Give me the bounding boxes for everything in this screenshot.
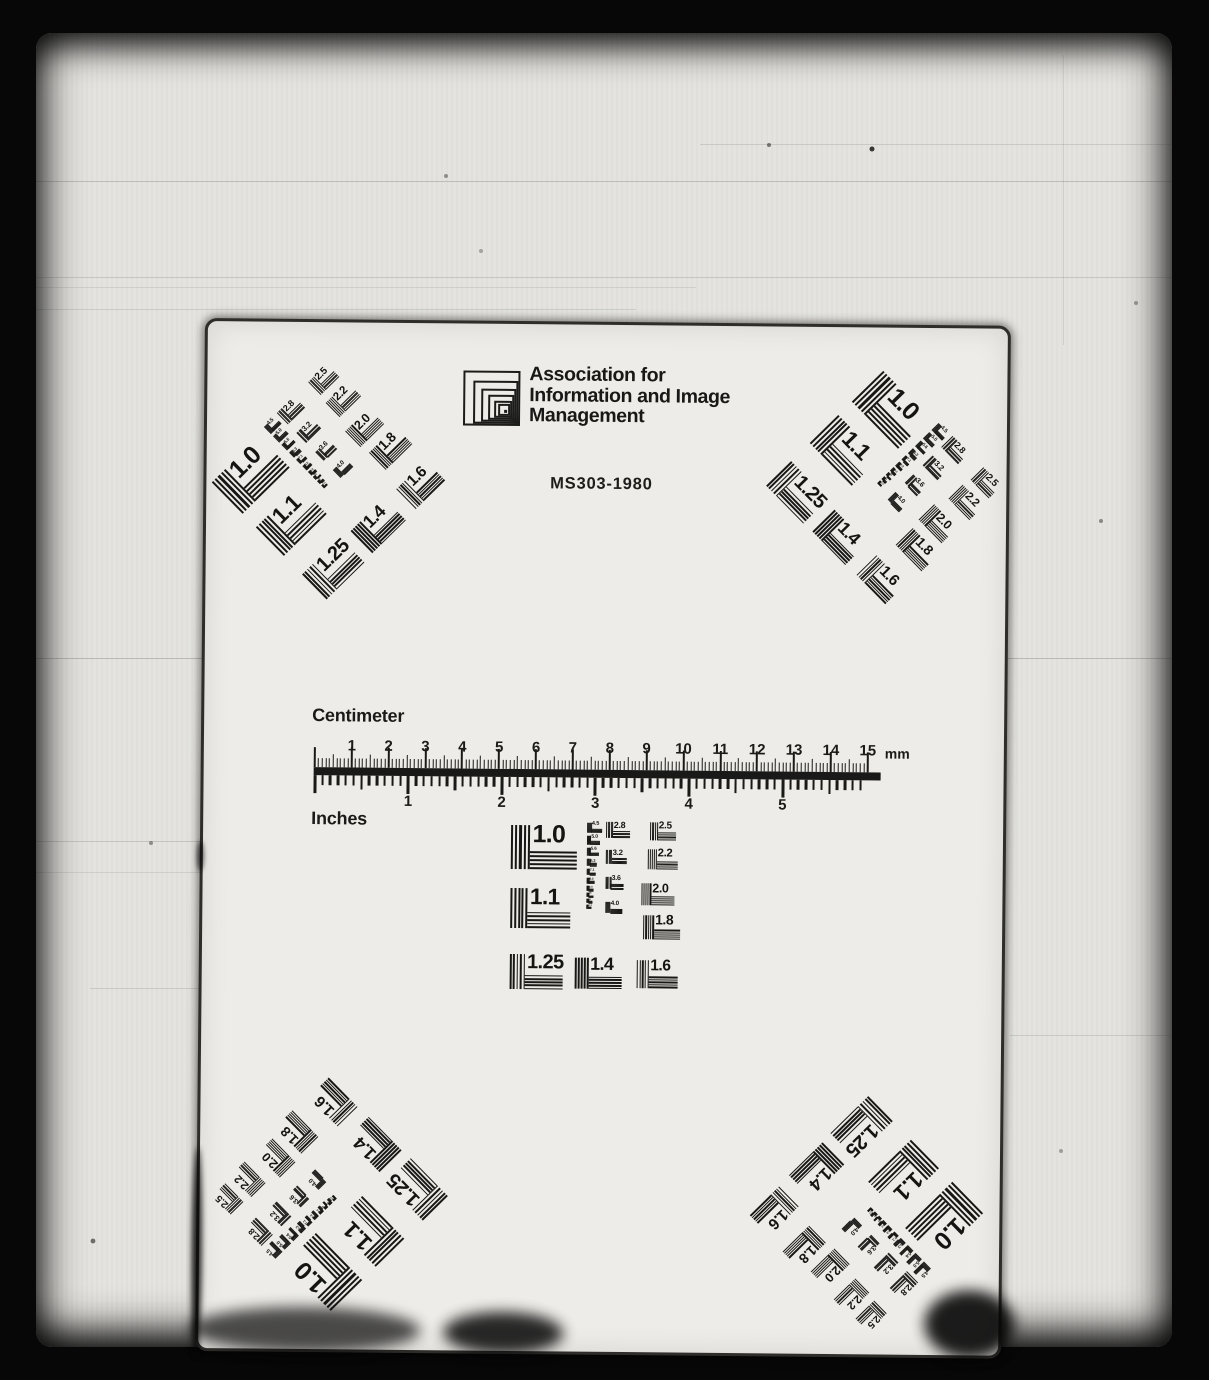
cm-tick	[863, 763, 864, 772]
cm-tick	[380, 759, 381, 768]
test-pattern-4.0: 4.0	[843, 1218, 862, 1237]
cm-tick	[447, 759, 448, 768]
cm-tick	[480, 756, 481, 769]
cm-tick	[561, 760, 562, 769]
test-pattern-1.25: 1.25	[510, 954, 563, 990]
horizontal-bars	[613, 831, 630, 838]
pattern-value-label: 1.6	[650, 958, 670, 974]
pattern-value-label: 10	[889, 473, 893, 477]
inch-tick	[602, 778, 604, 788]
inch-tick	[586, 778, 588, 788]
cm-tick	[602, 761, 603, 770]
inch-tick	[423, 776, 425, 786]
inch-tick	[836, 780, 838, 790]
vertical-bars	[575, 958, 589, 990]
cm-tick	[517, 756, 518, 769]
horizontal-bars	[656, 861, 677, 869]
cm-tick	[322, 758, 323, 767]
cm-tick	[336, 758, 337, 767]
test-pattern-1.0: 1.0	[511, 825, 577, 870]
inch-tick	[672, 779, 674, 789]
test-pattern-4.0: 4.0	[605, 902, 622, 913]
inch-tick	[625, 778, 627, 788]
cm-tick	[510, 760, 511, 769]
pattern-value-label: 2.5	[659, 821, 672, 831]
horizontal-bars	[530, 851, 577, 869]
inch-tick	[610, 778, 612, 788]
cm-tick	[314, 747, 316, 767]
scratch-line	[36, 181, 1172, 182]
test-pattern-4.0: 4.0	[888, 492, 907, 511]
inch-tick	[384, 776, 386, 786]
inch-tick	[454, 776, 457, 790]
cm-number: 5	[488, 739, 510, 756]
cm-tick	[355, 758, 356, 767]
pattern-value-label: 9.0	[589, 885, 593, 888]
pattern-value-label: 1.4	[590, 956, 613, 974]
inch-tick	[563, 777, 565, 787]
cm-tick	[521, 760, 522, 769]
horizontal-bars	[589, 881, 595, 883]
cm-tick	[568, 761, 569, 770]
cm-tick	[753, 762, 754, 771]
cm-tick	[860, 763, 861, 772]
inch-tick	[547, 777, 550, 791]
inch-tick	[774, 779, 776, 789]
pattern-value-label: 6.3	[897, 1243, 903, 1249]
vertical-bars	[648, 849, 657, 869]
cm-tick	[716, 762, 717, 771]
cm-number: 2	[378, 738, 400, 755]
test-pattern-2.2: 2.2	[834, 1278, 869, 1313]
horizontal-bars	[591, 828, 601, 832]
pattern-value-label: 2.2	[658, 848, 673, 860]
inch-number: 1	[397, 793, 419, 810]
test-pattern-2.8: 2.8	[606, 822, 630, 838]
cm-tick	[325, 758, 326, 767]
inch-tick	[368, 776, 370, 786]
pattern-value-label: 11	[884, 477, 887, 480]
cm-tick	[812, 759, 813, 772]
cm-tick	[679, 762, 680, 771]
cm-tick	[705, 762, 706, 771]
inch-number: 3	[584, 795, 606, 812]
cm-number: 6	[525, 739, 547, 756]
cm-tick	[506, 760, 507, 769]
inch-tick	[313, 775, 316, 793]
cm-tick	[709, 762, 710, 771]
pattern-value-label: 1.8	[655, 914, 673, 928]
horizontal-bars	[651, 896, 675, 905]
pattern-value-label: 10	[589, 892, 592, 895]
cm-tick	[554, 756, 555, 769]
horizontal-bars	[525, 975, 563, 990]
test-pattern-6.3: 6.3	[587, 859, 598, 866]
cm-tick	[841, 763, 842, 772]
test-pattern-12.5: 12.5	[321, 482, 327, 488]
horizontal-bars	[658, 833, 677, 840]
inches-label: Inches	[311, 808, 367, 830]
cm-tick	[487, 760, 488, 769]
cm-tick	[782, 763, 783, 772]
cm-tick	[801, 763, 802, 772]
pattern-value-label: 7.1	[590, 868, 595, 872]
test-pattern-3.2: 3.2	[923, 455, 947, 479]
cm-tick	[786, 763, 787, 772]
test-pattern-1.1: 1.1	[334, 1196, 405, 1267]
cm-tick	[373, 759, 374, 768]
inch-tick	[781, 780, 784, 798]
cm-tick	[620, 761, 621, 770]
cm-tick	[587, 761, 588, 770]
inch-tick	[345, 775, 347, 785]
cm-tick	[583, 761, 584, 770]
pattern-value-label: 9.0	[894, 469, 899, 474]
inch-tick	[438, 776, 440, 786]
pattern-value-label: 11	[588, 898, 590, 900]
cm-number: 7	[562, 739, 584, 756]
vertical-bars	[637, 960, 649, 988]
cm-tick	[627, 757, 628, 770]
cm-tick	[502, 760, 503, 769]
horizontal-bars	[588, 907, 592, 908]
cm-tick	[454, 759, 455, 768]
test-pattern-4.0: 4.0	[307, 1170, 326, 1189]
cm-tick	[624, 761, 625, 770]
inch-tick	[329, 775, 331, 785]
cm-tick	[771, 762, 772, 771]
inch-tick	[516, 777, 518, 787]
cm-tick	[694, 762, 695, 771]
test-pattern-3.2: 3.2	[606, 850, 627, 864]
test-pattern-2.0: 2.0	[641, 883, 674, 905]
cm-tick	[495, 760, 496, 769]
test-pattern-2.2: 2.2	[948, 485, 983, 520]
cm-tick	[377, 759, 378, 768]
cm-number: 4	[451, 738, 473, 755]
cm-tick	[764, 762, 765, 771]
cm-tick	[760, 762, 761, 771]
vertical-bars	[511, 825, 530, 869]
inch-tick	[727, 779, 729, 789]
cm-tick	[779, 763, 780, 772]
inch-tick	[641, 778, 644, 792]
vertical-bars	[510, 954, 526, 989]
inch-tick	[844, 780, 846, 790]
cm-tick	[428, 759, 429, 768]
inch-tick	[657, 778, 659, 788]
cm-tick	[333, 754, 334, 767]
cm-tick	[484, 760, 485, 769]
inch-tick	[696, 779, 698, 789]
inch-tick	[664, 778, 666, 788]
cm-tick	[414, 759, 415, 768]
cm-tick	[768, 762, 769, 771]
test-pattern-3.6: 3.6	[288, 1186, 310, 1208]
inch-tick	[555, 777, 557, 787]
inch-tick	[789, 780, 791, 790]
scratch-line	[36, 287, 696, 288]
inch-tick	[469, 777, 471, 787]
cm-tick	[347, 758, 348, 767]
cm-tick	[697, 762, 698, 771]
cm-tick	[439, 759, 440, 768]
pattern-value-label: 12.5	[588, 904, 592, 906]
cm-tick	[410, 759, 411, 768]
cm-tick	[727, 762, 728, 771]
test-pattern-2.2: 2.2	[230, 1162, 265, 1197]
cm-tick	[605, 761, 606, 770]
cm-tick	[631, 761, 632, 770]
test-pattern-3.6: 3.6	[315, 439, 337, 461]
cm-tick	[838, 763, 839, 772]
test-pattern-3.2: 3.2	[874, 1253, 898, 1277]
cm-tick	[539, 760, 540, 769]
vertical-bars	[650, 822, 658, 840]
cm-tick	[808, 763, 809, 772]
cm-tick	[675, 762, 676, 771]
inch-tick	[540, 777, 542, 787]
inch-tick	[687, 779, 690, 797]
inch-tick	[734, 779, 737, 793]
cm-tick	[686, 762, 687, 771]
cm-tick	[594, 761, 595, 770]
cm-tick	[340, 758, 341, 767]
vertical-bars	[643, 915, 654, 940]
test-pattern-5.6: 5.6	[587, 848, 599, 856]
vertical-bars	[510, 888, 528, 928]
cm-tick	[849, 759, 850, 772]
inch-tick	[500, 777, 503, 795]
cm-tick	[465, 760, 466, 769]
cm-tick	[734, 762, 735, 771]
pattern-value-label: 3.6	[612, 876, 621, 883]
test-pattern-1.4: 1.4	[575, 958, 622, 990]
cm-tick	[701, 758, 702, 771]
dust-specks	[0, 0, 2, 2]
inch-tick	[415, 776, 417, 786]
cm-tick	[580, 761, 581, 770]
test-pattern-4.0: 4.0	[333, 459, 352, 478]
pattern-value-label: 8.0	[589, 877, 593, 880]
test-pattern-1.6: 1.6	[750, 1187, 799, 1236]
inch-tick	[360, 776, 363, 790]
test-pattern-1.8: 1.8	[275, 1110, 318, 1153]
horizontal-bars	[589, 872, 596, 875]
pattern-value-label: 3.2	[613, 849, 623, 857]
cm-tick	[546, 760, 547, 769]
cm-tick	[742, 762, 743, 771]
cm-tick	[476, 760, 477, 769]
inch-tick	[812, 780, 814, 790]
test-pattern-3.6: 3.6	[858, 1235, 880, 1257]
cm-tick	[532, 760, 533, 769]
inch-tick	[321, 775, 323, 785]
cm-number: 15	[857, 742, 879, 759]
test-pattern-2.2: 2.2	[648, 849, 678, 869]
cm-tick	[591, 757, 592, 770]
horizontal-bars	[610, 908, 622, 913]
pattern-value-label: 2.8	[614, 821, 626, 830]
pattern-value-label: 1.0	[532, 822, 565, 847]
inch-tick	[579, 778, 581, 788]
cm-tick	[473, 760, 474, 769]
inch-tick	[462, 776, 464, 786]
cm-tick	[406, 755, 407, 768]
cm-tick	[344, 758, 345, 767]
test-pattern-1.6: 1.6	[396, 460, 445, 509]
cm-tick	[819, 763, 820, 772]
inch-tick	[391, 776, 393, 786]
cm-tick	[528, 760, 529, 769]
test-pattern-4.5: 4.5	[587, 823, 602, 833]
test-pattern-5.0: 5.0	[587, 836, 600, 845]
cm-tick	[790, 763, 791, 772]
cm-tick	[392, 759, 393, 768]
cm-tick	[421, 759, 422, 768]
inch-tick	[594, 778, 597, 796]
cm-tick	[845, 763, 846, 772]
test-pattern-10: 10	[586, 893, 593, 897]
inch-tick	[805, 780, 807, 790]
cm-tick	[749, 762, 750, 771]
inch-tick	[711, 779, 713, 789]
inch-tick	[618, 778, 620, 788]
cm-tick	[635, 761, 636, 770]
inch-number: 2	[490, 794, 512, 811]
inch-tick	[859, 780, 861, 790]
cm-tick	[576, 761, 577, 770]
inch-tick	[532, 777, 534, 787]
cm-tick	[653, 761, 654, 770]
inch-tick	[337, 775, 339, 785]
inch-tick	[430, 776, 432, 786]
inch-tick	[376, 776, 378, 786]
test-pattern-2.2: 2.2	[326, 382, 361, 417]
cm-tick	[775, 758, 776, 771]
cm-tick	[797, 763, 798, 772]
horizontal-bars	[612, 858, 627, 864]
cm-tick	[672, 762, 673, 771]
horizontal-bars	[590, 852, 598, 855]
cm-tick	[738, 758, 739, 771]
resolution-cluster-center: 1.01.11.251.41.62.83.23.64.02.52.22.01.8…	[501, 818, 683, 1000]
cm-tick	[469, 760, 470, 769]
cm-tick	[436, 759, 437, 768]
cm-tick	[491, 760, 492, 769]
test-pattern-1.6: 1.6	[309, 1078, 358, 1127]
cm-tick	[458, 759, 459, 768]
pattern-value-label: 5.0	[591, 835, 598, 840]
cm-tick	[613, 761, 614, 770]
inch-tick	[352, 775, 354, 785]
pattern-value-label: 7.1	[891, 1236, 897, 1242]
inch-tick	[407, 776, 410, 794]
inch-tick	[766, 779, 768, 789]
cm-tick	[598, 761, 599, 770]
inch-tick	[719, 779, 721, 789]
cm-tick	[524, 760, 525, 769]
cm-tick	[557, 760, 558, 769]
inch-tick	[571, 778, 573, 788]
centimeter-label: Centimeter	[312, 705, 404, 727]
cm-tick	[550, 760, 551, 769]
cm-tick	[395, 759, 396, 768]
horizontal-bars	[648, 977, 677, 989]
horizontal-bars	[527, 912, 570, 929]
cm-number: 1	[341, 737, 363, 754]
cm-tick	[642, 761, 643, 770]
cm-number: 10	[672, 741, 694, 758]
inch-tick	[703, 779, 705, 789]
cm-number: 13	[783, 742, 805, 759]
inch-tick	[750, 779, 752, 789]
cm-number: 14	[820, 742, 842, 759]
cm-tick	[661, 761, 662, 770]
cm-tick	[358, 758, 359, 767]
inch-tick	[742, 779, 744, 789]
test-pattern-3.2: 3.2	[296, 419, 320, 443]
test-pattern-1.1: 1.1	[868, 1140, 939, 1211]
horizontal-bars	[588, 895, 593, 897]
inch-tick	[477, 777, 479, 787]
test-pattern-3.6: 3.6	[606, 877, 624, 889]
test-pattern-1.8: 1.8	[643, 915, 680, 940]
scratch-line	[1010, 1035, 1170, 1036]
cm-number: 11	[709, 741, 731, 758]
horizontal-bars	[591, 841, 600, 845]
inch-tick	[797, 780, 799, 790]
cm-tick	[432, 759, 433, 768]
test-pattern-1.6: 1.6	[857, 555, 906, 604]
cm-tick	[639, 761, 640, 770]
horizontal-bars	[588, 901, 592, 903]
microfilm-frame: Association for Information and Image Ma…	[0, 0, 1209, 1380]
pattern-value-label: 8.0	[886, 1229, 891, 1234]
cm-tick	[827, 763, 828, 772]
test-pattern-9.0: 9.0	[587, 886, 594, 891]
horizontal-bars	[654, 930, 680, 940]
test-pattern-12.5: 12.5	[586, 905, 591, 909]
test-pattern-7.1: 7.1	[587, 869, 596, 875]
cm-tick	[565, 760, 566, 769]
test-pattern-1.1: 1.1	[510, 888, 570, 929]
horizontal-bars	[590, 863, 597, 866]
test-pattern-8.0: 8.0	[587, 878, 595, 884]
cm-tick	[616, 761, 617, 770]
inch-tick	[680, 779, 682, 789]
scratch-line	[1063, 55, 1064, 345]
cm-tick	[690, 762, 691, 771]
cm-number: 8	[599, 740, 621, 757]
inch-tick	[508, 777, 510, 787]
inch-tick	[758, 779, 760, 789]
cm-tick	[362, 759, 363, 768]
scratch-line	[700, 144, 1170, 145]
horizontal-bars	[589, 889, 594, 891]
inch-tick	[851, 780, 853, 790]
test-pattern-3.6: 3.6	[905, 474, 927, 496]
pattern-value-label: 1.25	[527, 952, 564, 972]
test-pattern-2.5: 2.5	[650, 822, 677, 840]
cm-tick	[823, 763, 824, 772]
inch-number: 5	[771, 796, 793, 813]
cm-tick	[668, 761, 669, 770]
cm-tick	[804, 763, 805, 772]
inch-number: 4	[678, 796, 700, 813]
cm-tick	[852, 763, 853, 772]
cm-tick	[650, 761, 651, 770]
